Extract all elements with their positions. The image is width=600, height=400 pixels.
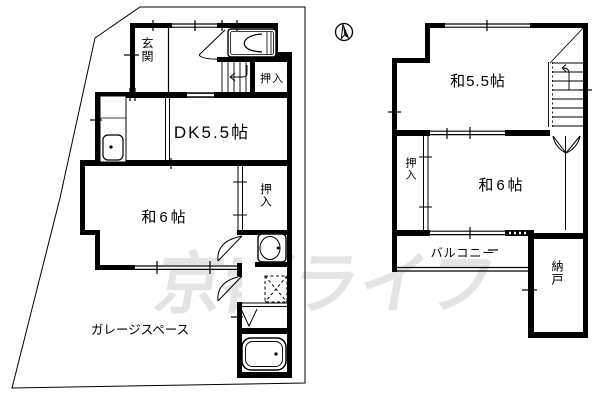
stairs-1f <box>217 58 250 95</box>
stairs-2f <box>549 25 587 127</box>
label-oshiire-1f: 押入 <box>257 183 273 208</box>
hall-dk-door <box>187 93 214 98</box>
compass-icon <box>334 22 353 41</box>
kitchen-sink-icon <box>100 96 126 162</box>
label-washitsu55-2f: 和5.5帖 <box>425 70 531 91</box>
wa6-door-arcs <box>553 136 580 153</box>
label-balcony: バルコニー <box>413 244 513 261</box>
window-2f-south <box>430 227 505 239</box>
label-oshiire-hall: 押入 <box>254 70 290 86</box>
floorplan-drawing <box>0 0 600 400</box>
oshiire3-partition <box>419 136 432 230</box>
label-washitsu6-2f: 和6帖 <box>460 174 544 195</box>
label-nando: 納戸 <box>549 260 566 286</box>
floorplan-image: 京都ライフ <box>0 0 600 400</box>
oshiire2-partition <box>233 166 247 230</box>
label-oshiire-2f: 押入 <box>402 157 418 181</box>
partition-window-2f <box>430 127 505 139</box>
label-dk: DK5.5帖 <box>156 118 268 143</box>
washroom-door-arc <box>218 236 242 261</box>
window-1f-south <box>135 261 237 274</box>
bathtub-icon <box>242 338 286 370</box>
toilet-icon <box>228 29 276 57</box>
label-garage: ガレージスペース <box>86 319 194 338</box>
washbasin-icon <box>258 234 286 262</box>
label-washitsu6-1f: 和6帖 <box>123 206 207 227</box>
label-genkan: 玄関 <box>139 37 156 63</box>
laundry-door-arc <box>218 276 242 301</box>
toilet-door-arc <box>199 30 225 59</box>
window-2f-north <box>445 20 530 31</box>
